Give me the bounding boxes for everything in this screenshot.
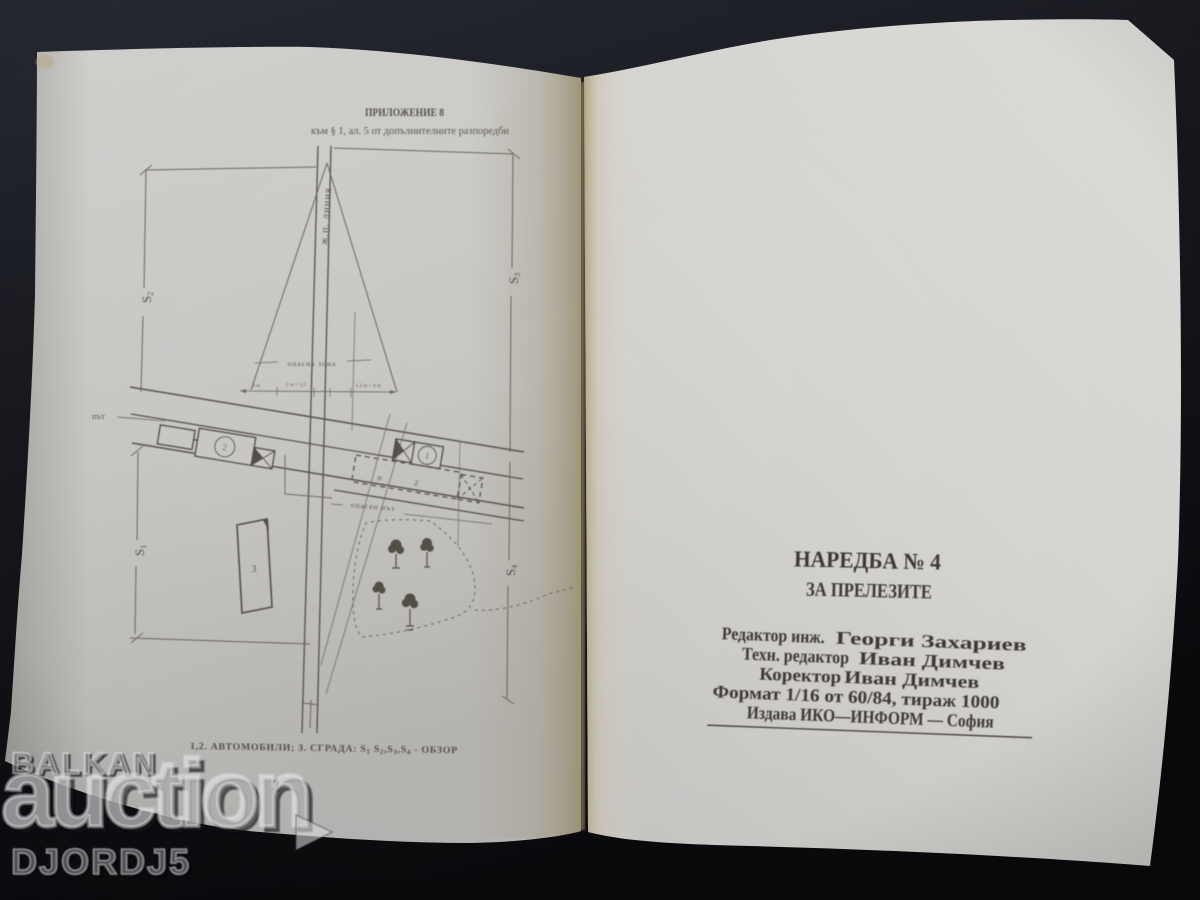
svg-text:DJORDJ5: DJORDJ5 [11, 841, 191, 882]
svg-text:auction: auction [1, 740, 307, 847]
